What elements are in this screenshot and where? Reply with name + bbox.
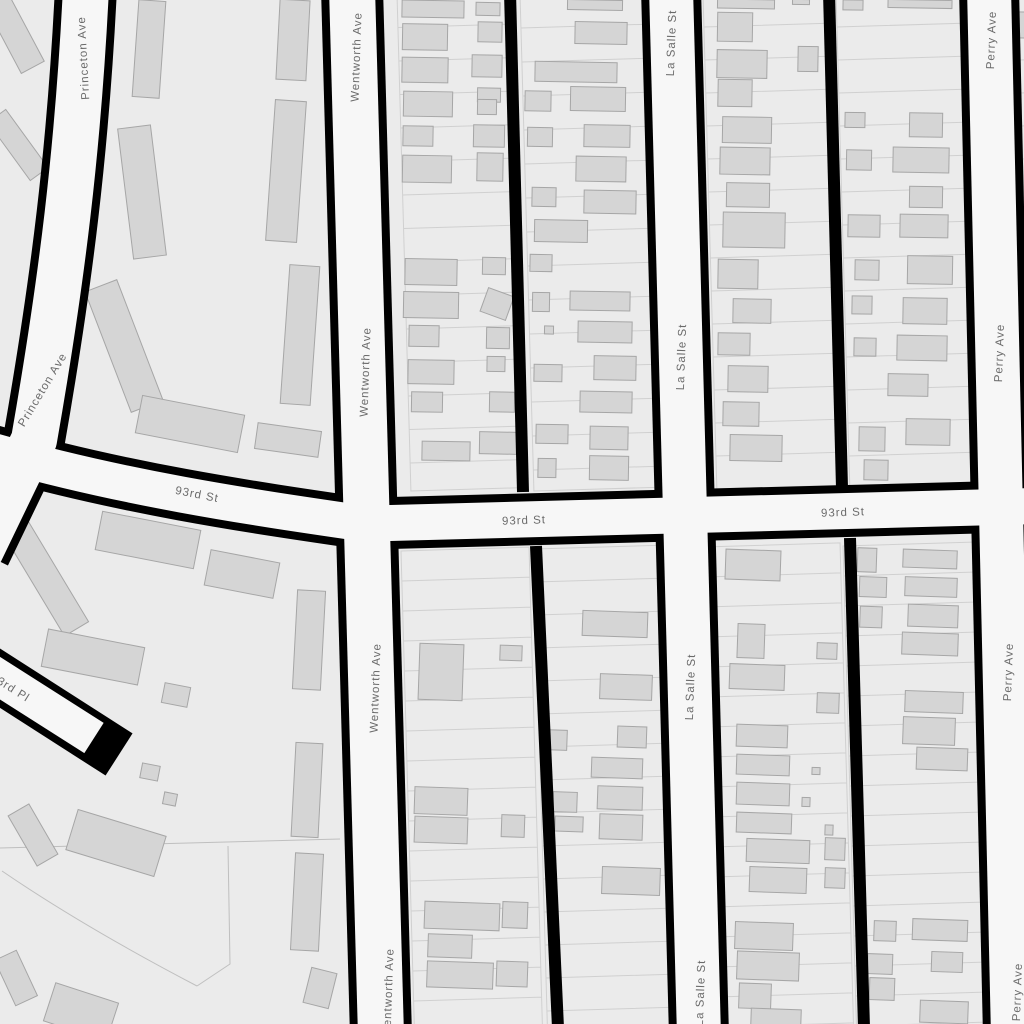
building-footprint: [525, 91, 551, 111]
building-footprint: [487, 356, 505, 371]
building-footprint: [162, 792, 177, 806]
building-footprint: [857, 548, 877, 573]
building-footprint: [599, 814, 643, 840]
map-canvas[interactable]: Princeton AvePrinceton AveWentworth AveW…: [0, 0, 1024, 1024]
building-footprint: [751, 1008, 802, 1024]
building-footprint: [476, 2, 500, 15]
building-footprint: [403, 292, 458, 319]
building-footprint: [736, 782, 790, 806]
building-footprint: [726, 183, 769, 208]
street-label: La Salle St: [665, 9, 679, 76]
building-footprint: [718, 259, 759, 289]
building-footprint: [723, 212, 786, 248]
building-footprint: [717, 50, 767, 79]
building-footprint: [41, 629, 144, 685]
land-boundary-line: [2, 871, 197, 986]
building-footprint: [280, 265, 320, 406]
building-footprint: [903, 298, 947, 325]
building-footprint: [534, 364, 562, 381]
building-footprint: [817, 693, 840, 714]
building-footprint: [538, 458, 556, 477]
building-footprint: [567, 0, 622, 10]
street-label: La Salle St: [675, 323, 689, 390]
building-footprint: [576, 156, 626, 182]
building-footprint: [0, 109, 48, 180]
street-fill-93rd-st-main: [352, 506, 1024, 524]
building-footprint: [730, 435, 782, 462]
building-footprint: [869, 978, 895, 1001]
building-footprint: [85, 280, 163, 413]
street-label: Wentworth Ave: [381, 948, 396, 1024]
street-label: 93rd St: [821, 506, 865, 520]
building-footprint: [502, 902, 528, 929]
building-footprint: [473, 125, 504, 148]
building-footprint: [161, 683, 190, 708]
building-footprint: [403, 91, 452, 117]
building-footprint: [792, 0, 809, 5]
building-footprint: [580, 391, 632, 413]
alley-wentworth-lasalle-south: [536, 546, 558, 1024]
street-label: 93rd St: [502, 514, 546, 528]
building-footprint: [825, 838, 846, 861]
building-footprint: [720, 147, 770, 175]
building-footprint: [544, 326, 553, 334]
building-footprint: [736, 724, 788, 748]
building-footprint: [414, 787, 468, 816]
building-footprint: [812, 767, 820, 774]
building-footprint: [725, 549, 781, 581]
building-footprint: [530, 254, 552, 271]
building-footprint: [798, 46, 818, 71]
map-viewport[interactable]: Princeton AvePrinceton AveWentworth AveW…: [0, 0, 1024, 1024]
building-footprint: [600, 674, 653, 701]
building-footprint: [737, 624, 765, 659]
building-footprint: [817, 643, 838, 660]
building-footprint: [867, 954, 893, 975]
building-footprint: [589, 456, 628, 481]
building-footprint: [489, 392, 514, 412]
building-footprint: [733, 299, 771, 324]
building-footprint: [411, 392, 442, 413]
building-footprint: [0, 0, 44, 73]
building-footprint: [536, 424, 568, 444]
building-footprint: [472, 55, 502, 78]
building-footprint: [737, 951, 800, 981]
building-footprint: [905, 690, 964, 713]
building-footprint: [422, 441, 470, 461]
building-footprint: [204, 550, 280, 599]
building-footprint: [859, 577, 887, 598]
building-footprint: [578, 321, 632, 343]
building-footprint: [405, 259, 457, 286]
building-footprint: [903, 717, 956, 746]
building-footprint: [920, 1000, 969, 1024]
building-footprint: [907, 256, 952, 285]
building-footprint: [888, 374, 928, 397]
building-footprint: [900, 214, 948, 238]
building-footprint: [802, 797, 810, 806]
building-footprint: [893, 147, 949, 173]
building-footprint: [479, 432, 516, 455]
building-footprint: [736, 754, 790, 776]
building-footprint: [66, 809, 166, 876]
building-footprint: [501, 815, 525, 838]
building-footprint: [8, 804, 58, 866]
building-footprint: [582, 610, 648, 637]
land-boundary-line: [197, 846, 230, 986]
building-footprint: [527, 127, 552, 146]
building-footprint: [532, 187, 556, 206]
street-label: Perry Ave: [993, 323, 1007, 382]
building-footprint: [534, 220, 587, 243]
building-footprint: [717, 0, 774, 9]
building-footprint: [905, 577, 958, 598]
building-footprint: [852, 296, 872, 314]
building-footprint: [859, 427, 885, 451]
building-footprint: [717, 12, 753, 42]
building-footprint: [255, 423, 322, 458]
building-footprint: [424, 901, 500, 931]
building-footprint: [846, 150, 871, 170]
building-footprint: [553, 792, 578, 813]
building-footprint: [906, 419, 950, 446]
street-label: La Salle St: [694, 959, 708, 1024]
street-label: La Salle St: [684, 653, 698, 720]
street-label: Perry Ave: [1002, 642, 1016, 701]
building-footprint: [428, 934, 473, 959]
building-footprint: [855, 260, 879, 280]
building-footprint: [888, 0, 952, 9]
building-footprint: [477, 153, 503, 181]
building-footprint: [908, 604, 959, 628]
building-footprint: [722, 117, 771, 144]
building-footprint: [402, 0, 464, 18]
building-footprint: [266, 100, 307, 243]
building-footprint: [140, 763, 161, 781]
building-footprint: [729, 664, 785, 691]
building-footprint: [860, 606, 883, 628]
building-footprint: [723, 402, 759, 427]
building-footprint: [597, 786, 643, 811]
building-footprint: [897, 335, 947, 361]
building-footprint: [591, 757, 643, 779]
building-footprint: [535, 61, 617, 82]
building-footprint: [500, 645, 523, 661]
building-footprint: [402, 57, 448, 83]
building-footprint: [718, 79, 752, 107]
street-label: Perry Ave: [1011, 962, 1024, 1021]
building-footprint: [132, 0, 166, 98]
building-footprint: [135, 395, 244, 452]
building-footprint: [43, 983, 118, 1024]
street-label: Perry Ave: [985, 10, 999, 69]
building-footprint: [874, 921, 897, 942]
building-footprint: [418, 643, 464, 701]
building-footprint: [427, 961, 494, 989]
building-footprint: [276, 0, 310, 81]
building-footprint: [909, 113, 942, 138]
building-footprint: [486, 327, 509, 348]
building-footprint: [825, 868, 846, 889]
building-footprint: [532, 292, 549, 311]
building-footprint: [848, 215, 880, 238]
building-footprint: [584, 125, 630, 148]
building-footprint: [909, 186, 942, 208]
building-footprint: [570, 291, 630, 311]
building-footprint: [496, 961, 528, 987]
building-footprint: [575, 22, 627, 45]
building-footprint: [728, 366, 768, 393]
building-footprint: [746, 838, 810, 863]
building-footprint: [402, 24, 447, 51]
building-footprint: [854, 338, 876, 356]
building-footprint: [931, 951, 963, 972]
building-footprint: [845, 112, 865, 127]
building-footprint: [617, 726, 647, 748]
building-footprint: [843, 0, 863, 10]
building-footprint: [477, 99, 496, 114]
building-footprint: [292, 590, 325, 690]
building-footprint: [903, 549, 958, 569]
building-footprint: [735, 921, 794, 950]
building-footprint: [584, 190, 636, 214]
building-footprint: [739, 983, 772, 1009]
building-footprint: [291, 742, 323, 837]
building-footprint: [825, 825, 833, 835]
building-footprint: [912, 919, 968, 942]
building-footprint: [718, 333, 750, 356]
building-footprint: [570, 87, 625, 112]
building-footprint: [0, 950, 37, 1005]
building-footprint: [864, 460, 888, 480]
building-footprint: [590, 426, 628, 450]
building-footprint: [118, 125, 167, 259]
alley-lasalle-perry-north: [829, 0, 842, 488]
building-footprint: [602, 866, 661, 895]
building-footprint: [409, 325, 439, 347]
building-footprint: [403, 126, 433, 147]
building-footprint: [736, 812, 792, 834]
building-footprint: [749, 867, 807, 894]
building-footprint: [290, 853, 323, 951]
building-footprint: [482, 257, 505, 274]
building-footprint: [408, 360, 454, 385]
building-footprint: [303, 967, 337, 1008]
alley-wentworth-lasalle-north: [510, 0, 523, 492]
building-footprint: [478, 22, 502, 42]
building-footprint: [414, 816, 468, 844]
building-footprint: [594, 356, 636, 381]
building-footprint: [402, 155, 451, 183]
building-footprint: [555, 816, 584, 832]
building-footprint: [902, 632, 959, 656]
building-footprint: [916, 747, 968, 771]
